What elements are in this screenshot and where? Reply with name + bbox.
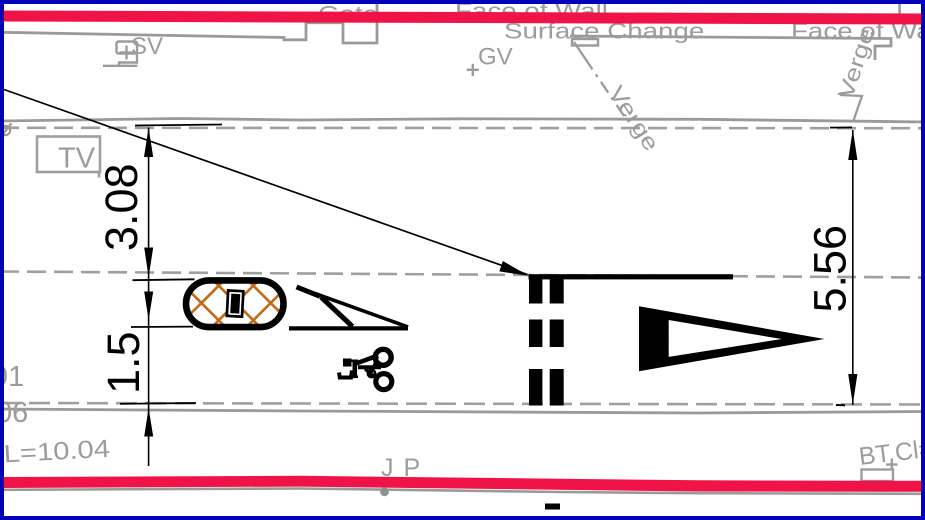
svg-text:SV: SV <box>131 33 163 60</box>
svg-text:3.08: 3.08 <box>96 163 147 251</box>
svg-text:5.56: 5.56 <box>805 225 856 313</box>
svg-text:BT: BT <box>857 439 892 471</box>
svg-text:GV: GV <box>478 43 513 70</box>
svg-text:1.5: 1.5 <box>98 331 149 394</box>
svg-text:Cl=: Cl= <box>893 435 925 467</box>
svg-text:TV: TV <box>58 143 96 175</box>
svg-text:06: 06 <box>0 397 28 429</box>
